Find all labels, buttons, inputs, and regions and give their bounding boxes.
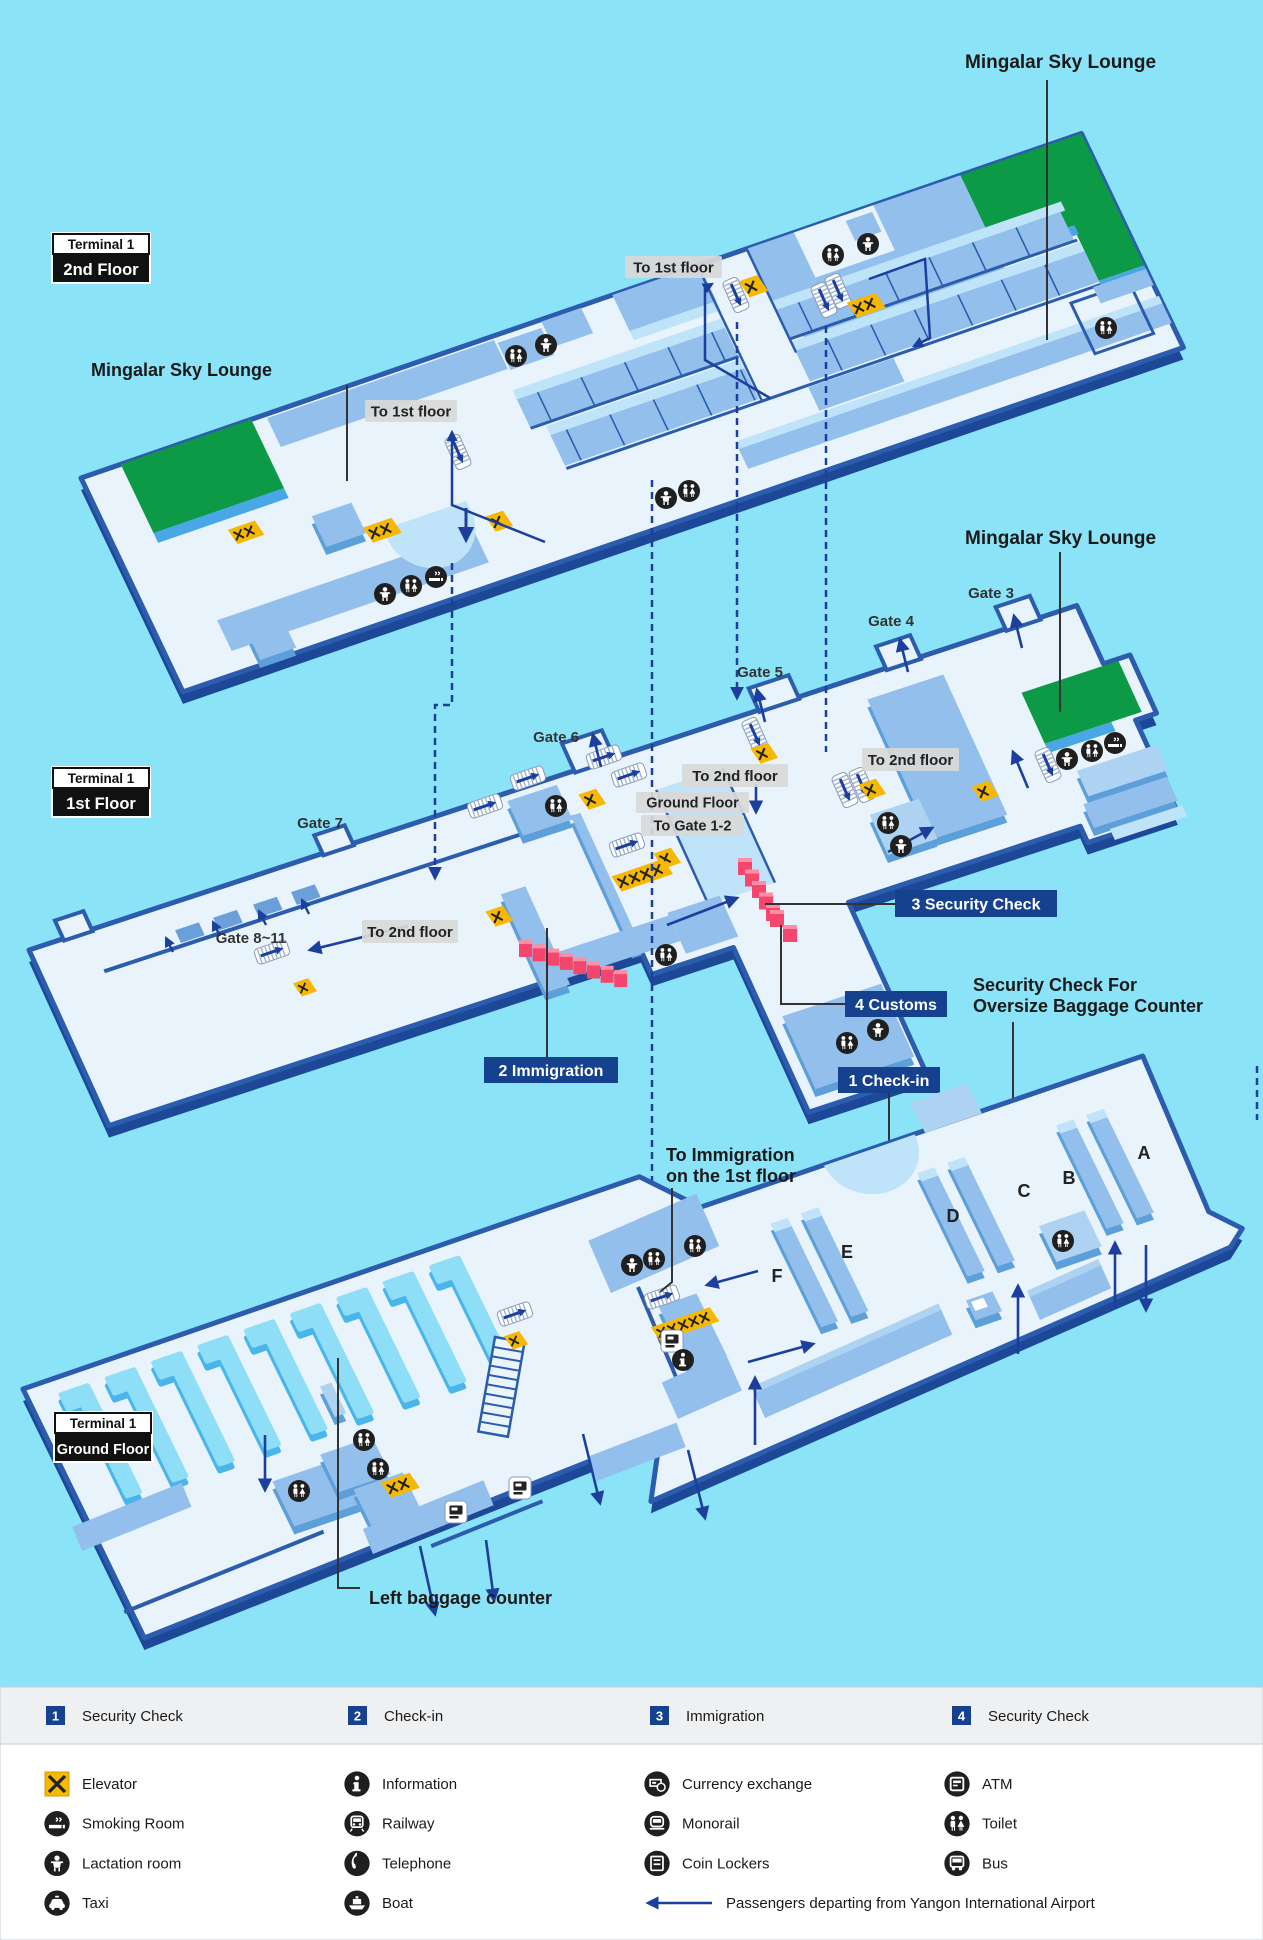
svg-text:4: 4 xyxy=(958,1709,966,1724)
svg-text:Coin Lockers: Coin Lockers xyxy=(682,1855,770,1872)
svg-text:Currency exchange: Currency exchange xyxy=(682,1776,812,1793)
svg-text:C: C xyxy=(1018,1181,1031,1201)
svg-text:To 2nd floor: To 2nd floor xyxy=(868,752,954,769)
svg-text:Security Check: Security Check xyxy=(988,1708,1089,1725)
svg-text:Boat: Boat xyxy=(382,1895,414,1912)
svg-text:Railway: Railway xyxy=(382,1816,435,1833)
svg-text:3: 3 xyxy=(656,1709,663,1724)
svg-text:B: B xyxy=(1063,1168,1076,1188)
svg-text:Lactation room: Lactation room xyxy=(82,1855,181,1872)
svg-text:Ground Floor: Ground Floor xyxy=(57,1442,150,1458)
svg-text:To Immigration: To Immigration xyxy=(666,1145,795,1165)
svg-text:1 Check-in: 1 Check-in xyxy=(849,1073,930,1090)
svg-text:Gate 4: Gate 4 xyxy=(868,613,915,630)
svg-text:3 Security Check: 3 Security Check xyxy=(912,896,1041,913)
svg-text:Monorail: Monorail xyxy=(682,1816,740,1833)
svg-text:Gate 8~11: Gate 8~11 xyxy=(216,930,286,947)
svg-text:Check-in: Check-in xyxy=(384,1708,443,1725)
svg-text:A: A xyxy=(1138,1143,1151,1163)
svg-text:Mingalar Sky Lounge: Mingalar Sky Lounge xyxy=(91,360,272,380)
svg-text:2 Immigration: 2 Immigration xyxy=(499,1063,604,1080)
svg-text:4 Customs: 4 Customs xyxy=(855,997,937,1014)
svg-text:1: 1 xyxy=(52,1709,59,1724)
svg-text:D: D xyxy=(947,1206,960,1226)
svg-text:Gate 6: Gate 6 xyxy=(533,729,579,746)
svg-text:Mingalar Sky Lounge: Mingalar Sky Lounge xyxy=(965,52,1156,73)
svg-text:Security Check For: Security Check For xyxy=(973,975,1137,995)
svg-text:Gate 7: Gate 7 xyxy=(297,815,343,832)
svg-text:Mingalar Sky Lounge: Mingalar Sky Lounge xyxy=(965,528,1156,549)
svg-text:To 1st floor: To 1st floor xyxy=(371,403,452,420)
svg-text:Toilet: Toilet xyxy=(982,1816,1018,1833)
svg-text:Immigration: Immigration xyxy=(686,1708,764,1725)
svg-text:2: 2 xyxy=(354,1709,361,1724)
svg-text:Terminal 1: Terminal 1 xyxy=(68,237,135,252)
svg-text:Gate 3: Gate 3 xyxy=(968,585,1014,602)
svg-text:Left baggage counter: Left baggage counter xyxy=(369,1588,552,1608)
svg-text:F: F xyxy=(772,1266,783,1286)
svg-text:E: E xyxy=(841,1242,853,1262)
svg-text:2nd Floor: 2nd Floor xyxy=(63,261,139,279)
svg-text:Ground Floor: Ground Floor xyxy=(646,796,739,812)
svg-text:ATM: ATM xyxy=(982,1776,1013,1793)
svg-text:Telephone: Telephone xyxy=(382,1855,451,1872)
svg-text:Bus: Bus xyxy=(982,1855,1008,1872)
svg-text:To 1st floor: To 1st floor xyxy=(633,259,714,276)
svg-text:Gate 5: Gate 5 xyxy=(737,664,783,681)
svg-text:Terminal 1: Terminal 1 xyxy=(70,1416,137,1431)
svg-text:Information: Information xyxy=(382,1776,457,1793)
svg-text:Smoking Room: Smoking Room xyxy=(82,1816,185,1833)
svg-text:To 2nd floor: To 2nd floor xyxy=(367,924,453,941)
svg-text:Elevator: Elevator xyxy=(82,1776,137,1793)
svg-text:Taxi: Taxi xyxy=(82,1895,109,1912)
svg-text:Oversize Baggage Counter: Oversize Baggage Counter xyxy=(973,996,1203,1016)
svg-text:To 2nd floor: To 2nd floor xyxy=(692,768,778,785)
svg-text:Passengers departing from Yang: Passengers departing from Yangon Interna… xyxy=(726,1895,1096,1912)
svg-text:Security Check: Security Check xyxy=(82,1708,183,1725)
svg-text:To Gate 1-2: To Gate 1-2 xyxy=(654,819,732,835)
svg-text:Terminal 1: Terminal 1 xyxy=(68,771,135,786)
svg-text:on the 1st floor: on the 1st floor xyxy=(666,1166,796,1186)
svg-text:1st Floor: 1st Floor xyxy=(66,795,136,813)
